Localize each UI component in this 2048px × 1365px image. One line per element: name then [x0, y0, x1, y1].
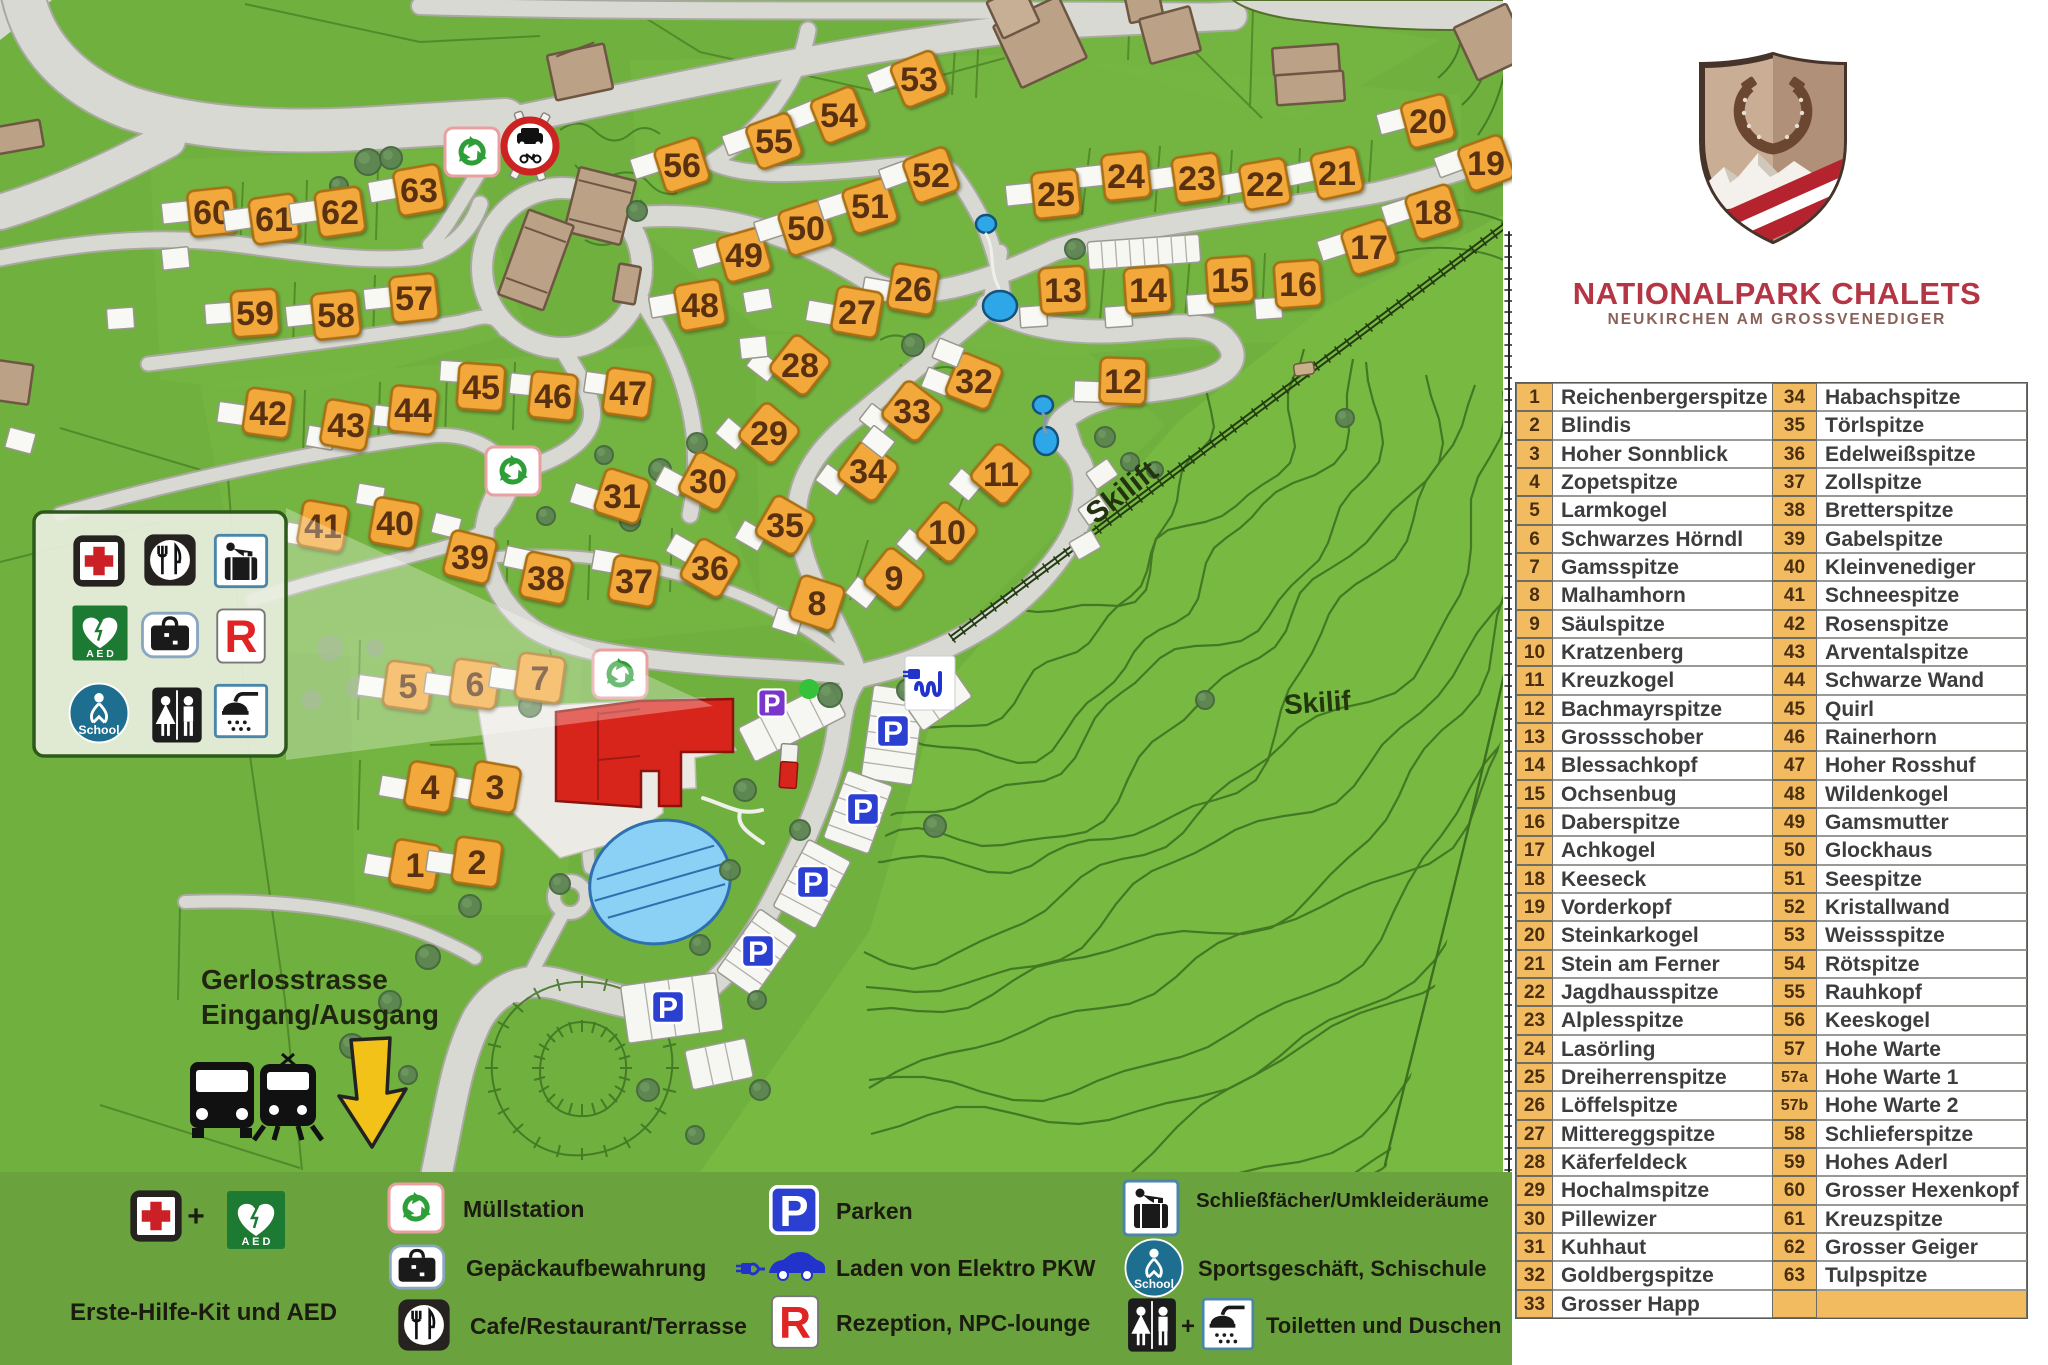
- svg-text:54: 54: [820, 97, 858, 135]
- svg-text:32: 32: [955, 363, 993, 401]
- svg-text:39: 39: [451, 539, 489, 577]
- svg-text:21: 21: [1318, 155, 1356, 193]
- svg-text:58: 58: [317, 297, 355, 335]
- svg-text:57: 57: [395, 280, 433, 318]
- svg-text:Cafe/Restaurant/Terrasse: Cafe/Restaurant/Terrasse: [470, 1313, 747, 1339]
- svg-text:Eingang/Ausgang: Eingang/Ausgang: [201, 999, 439, 1030]
- svg-text:19: 19: [1467, 145, 1505, 183]
- svg-text:25: 25: [1037, 176, 1075, 214]
- svg-text:16: 16: [1279, 266, 1317, 304]
- svg-text:School: School: [78, 723, 119, 737]
- svg-text:+: +: [187, 1200, 205, 1233]
- svg-text:48: 48: [681, 287, 719, 325]
- svg-text:A E D: A E D: [86, 649, 114, 660]
- svg-text:49: 49: [725, 237, 763, 275]
- svg-text:28: 28: [781, 347, 819, 385]
- svg-text:12: 12: [1104, 363, 1142, 401]
- svg-text:27: 27: [838, 294, 876, 332]
- svg-text:36: 36: [691, 550, 729, 588]
- svg-text:34: 34: [849, 453, 887, 491]
- svg-text:P: P: [763, 690, 780, 718]
- svg-text:40: 40: [376, 505, 414, 543]
- svg-text:R: R: [779, 1299, 811, 1348]
- svg-text:20: 20: [1409, 103, 1447, 141]
- svg-text:Müllstation: Müllstation: [463, 1196, 584, 1222]
- svg-text:51: 51: [851, 188, 889, 226]
- svg-text:School: School: [1134, 1277, 1174, 1291]
- svg-text:44: 44: [394, 392, 432, 430]
- svg-text:47: 47: [609, 375, 647, 413]
- svg-text:R: R: [225, 611, 258, 662]
- svg-text:31: 31: [603, 478, 641, 516]
- svg-text:2: 2: [468, 844, 487, 882]
- svg-text:10: 10: [928, 514, 966, 552]
- svg-text:Laden von Elektro PKW: Laden von Elektro PKW: [836, 1255, 1096, 1281]
- svg-text:42: 42: [249, 395, 287, 433]
- svg-text:11: 11: [983, 456, 1019, 494]
- svg-text:37: 37: [615, 563, 653, 601]
- svg-text:50: 50: [787, 210, 825, 248]
- svg-text:23: 23: [1178, 160, 1216, 198]
- svg-text:22: 22: [1246, 166, 1284, 204]
- svg-text:Gepäckaufbewahrung: Gepäckaufbewahrung: [466, 1255, 706, 1281]
- svg-text:P: P: [883, 716, 903, 749]
- svg-text:35: 35: [766, 507, 804, 545]
- svg-text:33: 33: [893, 393, 931, 431]
- svg-text:62: 62: [321, 194, 359, 232]
- svg-text:13: 13: [1044, 272, 1082, 310]
- svg-text:P: P: [658, 992, 678, 1025]
- svg-text:1: 1: [406, 847, 425, 885]
- svg-text:30: 30: [689, 463, 727, 501]
- svg-text:9: 9: [885, 560, 904, 598]
- svg-text:Sportsgeschäft, Schischule: Sportsgeschäft, Schischule: [1198, 1256, 1487, 1281]
- svg-text:63: 63: [400, 172, 438, 210]
- svg-text:29: 29: [750, 415, 788, 453]
- svg-text:Gerlosstrasse: Gerlosstrasse: [201, 964, 388, 995]
- svg-text:+: +: [1181, 1313, 1195, 1340]
- svg-text:15: 15: [1211, 262, 1249, 300]
- svg-text:38: 38: [527, 560, 565, 598]
- svg-text:46: 46: [534, 378, 572, 416]
- svg-text:A E D: A E D: [242, 1236, 271, 1248]
- svg-text:17: 17: [1350, 229, 1388, 267]
- svg-text:Erste-Hilfe-Kit und AED: Erste-Hilfe-Kit und AED: [70, 1299, 337, 1326]
- svg-text:8: 8: [808, 585, 827, 623]
- svg-text:43: 43: [327, 407, 365, 445]
- svg-text:61: 61: [255, 201, 293, 239]
- svg-text:18: 18: [1414, 194, 1452, 232]
- svg-text:P: P: [748, 936, 768, 969]
- svg-text:52: 52: [912, 157, 950, 195]
- svg-text:55: 55: [755, 123, 793, 161]
- svg-text:P: P: [853, 794, 873, 827]
- svg-text:Parken: Parken: [836, 1198, 913, 1224]
- svg-text:Schließfächer/Umkleideräume: Schließfächer/Umkleideräume: [1196, 1189, 1489, 1212]
- svg-text:14: 14: [1129, 272, 1167, 310]
- svg-text:P: P: [803, 867, 823, 900]
- svg-text:56: 56: [663, 147, 701, 185]
- svg-text:24: 24: [1107, 158, 1145, 196]
- svg-text:3: 3: [486, 769, 505, 807]
- svg-text:45: 45: [462, 369, 500, 407]
- svg-text:53: 53: [900, 61, 938, 99]
- svg-text:4: 4: [421, 769, 440, 807]
- svg-text:59: 59: [236, 295, 274, 333]
- svg-text:Skilif: Skilif: [1283, 685, 1353, 721]
- svg-text:26: 26: [894, 271, 932, 309]
- svg-text:Toiletten und Duschen: Toiletten und Duschen: [1266, 1313, 1501, 1338]
- svg-text:Rezeption, NPC-lounge: Rezeption, NPC-lounge: [836, 1310, 1090, 1336]
- svg-text:P: P: [779, 1188, 808, 1236]
